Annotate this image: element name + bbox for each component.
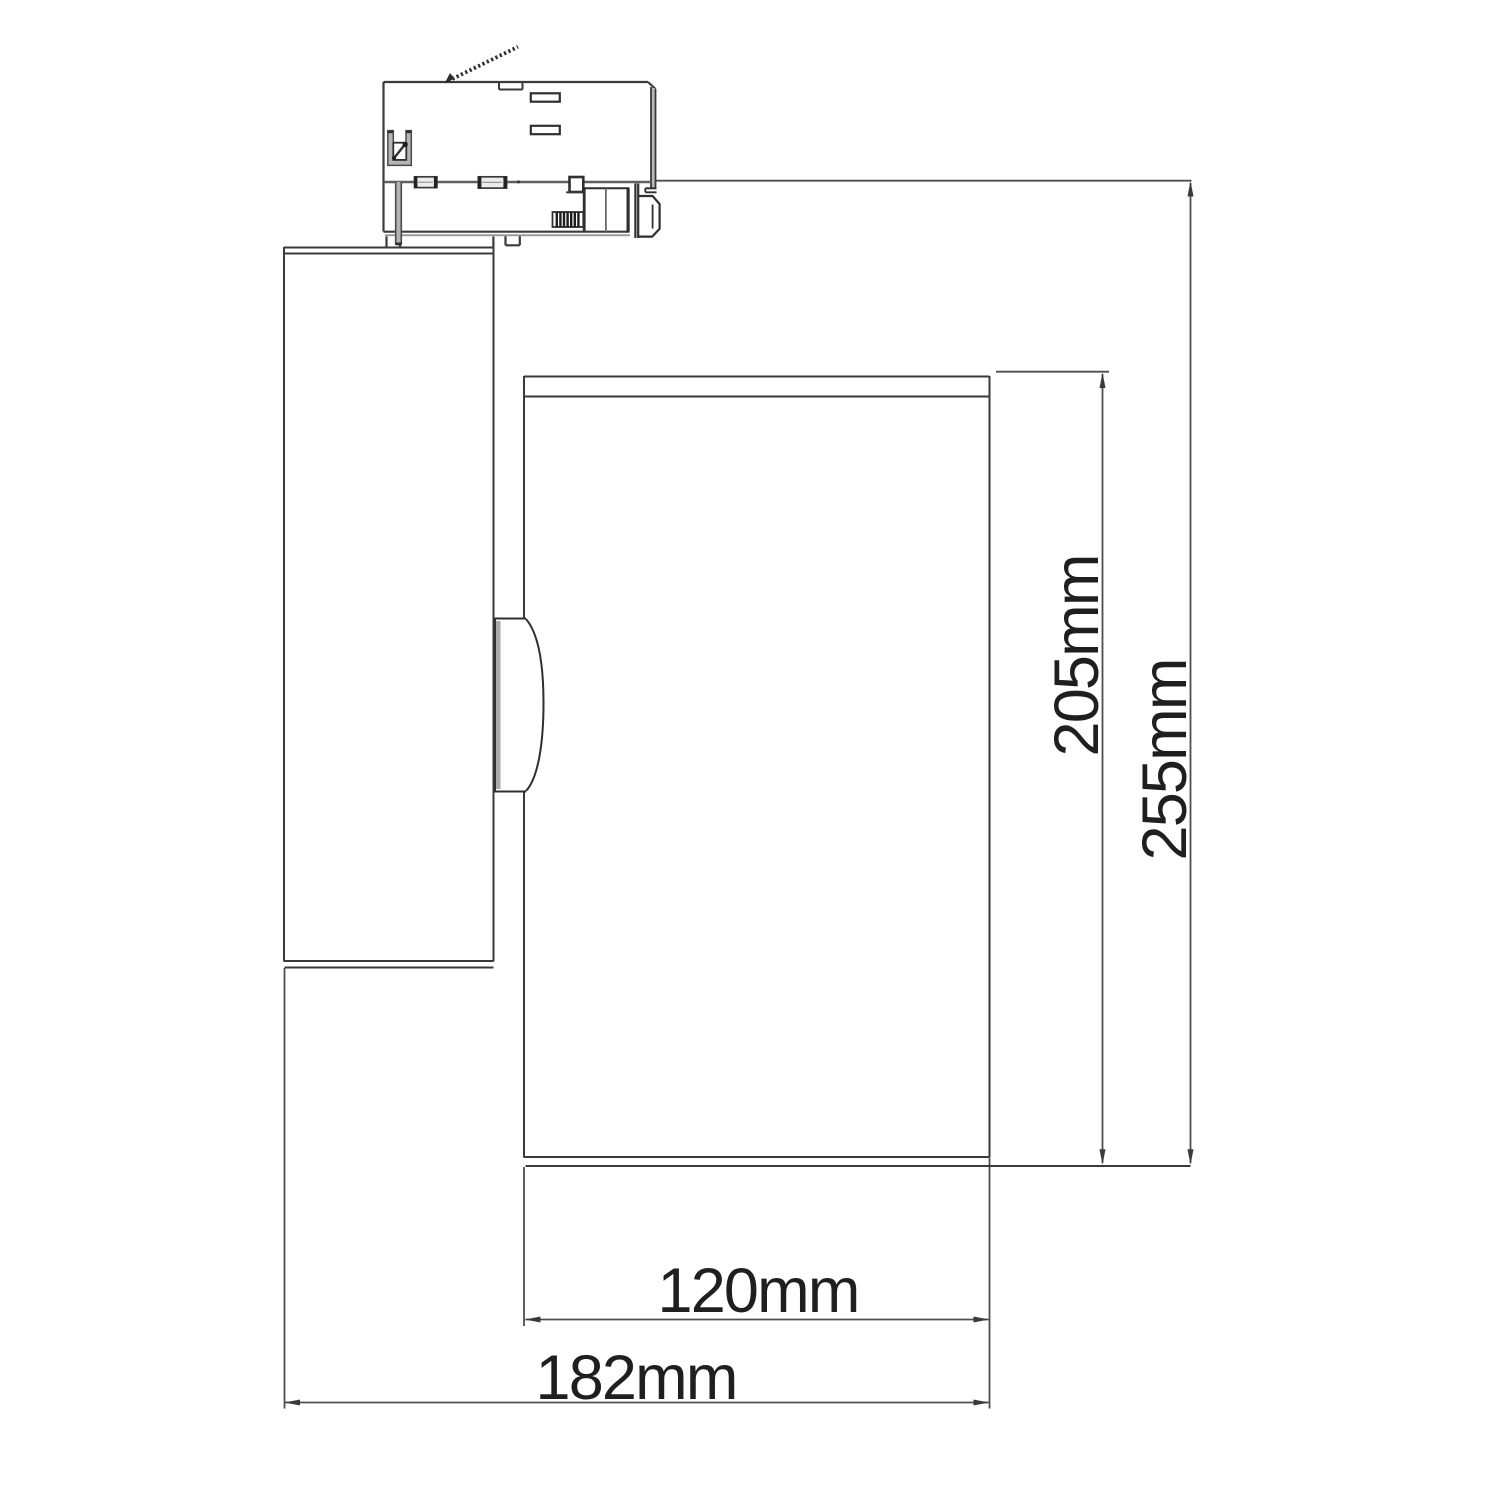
svg-text:255mm: 255mm <box>1130 659 1200 860</box>
svg-text:205mm: 205mm <box>1042 555 1112 756</box>
svg-text:120mm: 120mm <box>657 1256 858 1326</box>
svg-text:182mm: 182mm <box>535 1343 736 1413</box>
